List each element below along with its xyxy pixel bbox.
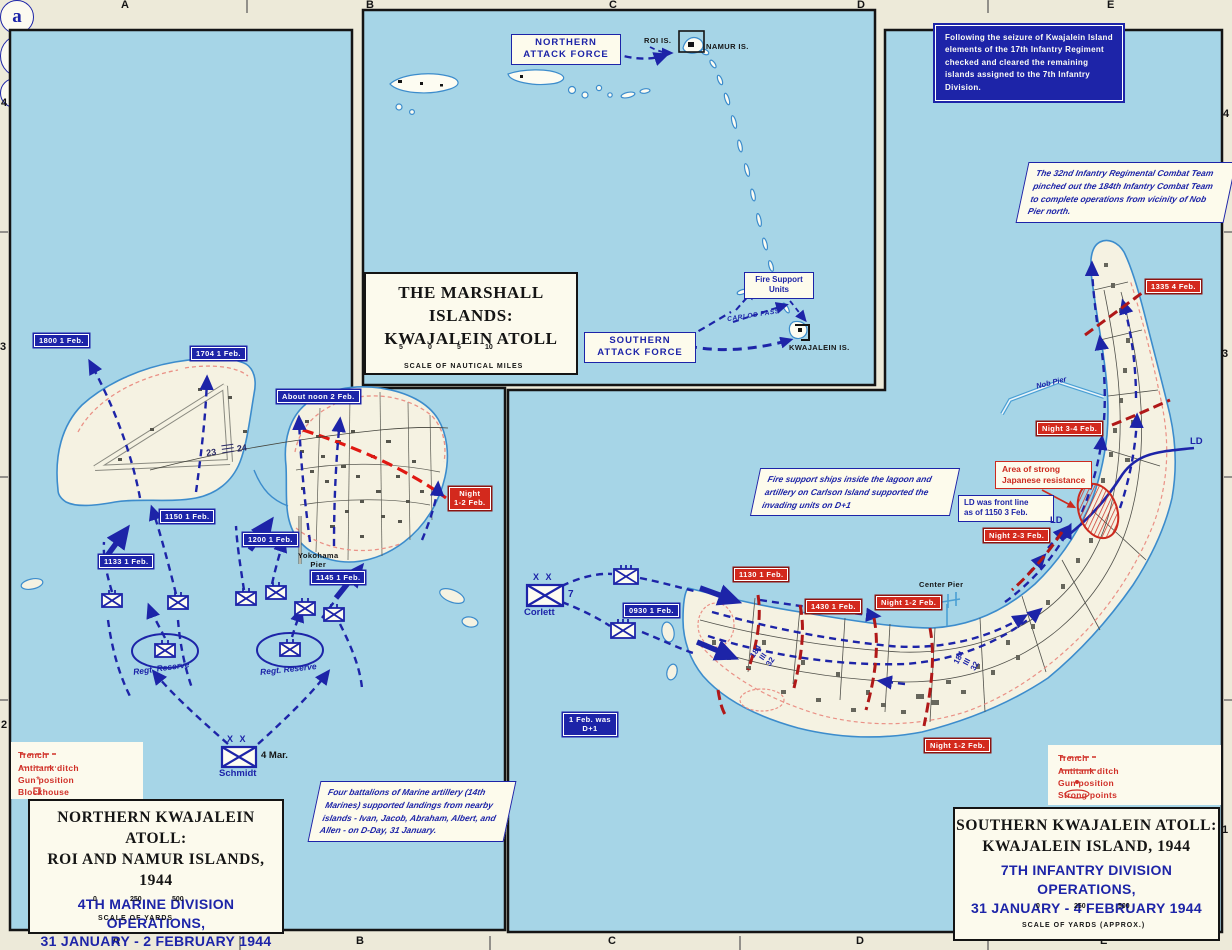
boundary-23: 23 bbox=[206, 447, 217, 458]
antitank-ditch-symbol bbox=[1058, 765, 1098, 775]
night-1-2-feb-mid: Night 1-2 Feb. bbox=[876, 596, 941, 609]
resistance-area-label: Area of strong Japanese resistance bbox=[995, 461, 1092, 489]
center-pier-label: Center Pier bbox=[919, 580, 963, 589]
grid-top-d: D bbox=[857, 0, 865, 11]
d-plus-1-note: 1 Feb. was D+1 bbox=[563, 713, 617, 736]
trench-symbol bbox=[18, 749, 58, 759]
inset-scale-tick: 5 bbox=[399, 344, 403, 351]
night-2-3-feb: Night 2-3 Feb. bbox=[984, 529, 1049, 542]
gun-position-symbol: * bbox=[18, 774, 58, 784]
grid-top-e: E bbox=[1107, 0, 1114, 11]
time-label-1145: 1145 1 Feb. bbox=[311, 571, 365, 584]
time-label-1200: 1200 1 Feb. bbox=[243, 533, 298, 546]
legend-row: Strong points bbox=[1058, 789, 1117, 801]
time-label-0930: 0930 1 Feb. bbox=[624, 604, 679, 617]
kwajalein-island-label: KWAJALEIN IS. bbox=[789, 343, 850, 352]
grid-left-2: 2 bbox=[1, 719, 7, 731]
scale-tick: 0 bbox=[93, 896, 97, 903]
scale-label: SCALE OF YARDS (APPROX.) bbox=[1022, 922, 1145, 929]
legend-row: Antitank ditch bbox=[1058, 765, 1119, 777]
grid-top-c: C bbox=[609, 0, 617, 11]
grid-bottom-d: D bbox=[856, 935, 864, 947]
grid-right-1: 1 bbox=[1222, 824, 1228, 836]
inset-scale-tick: 5 bbox=[457, 344, 461, 351]
division-xx-south: X X bbox=[533, 573, 554, 583]
fire-support-units-label: Fire Support Units bbox=[744, 272, 814, 299]
boundary-24: 24 bbox=[236, 442, 247, 453]
division-xx-north: X X bbox=[227, 735, 248, 745]
time-label-1150: 1150 1 Feb. bbox=[160, 510, 214, 523]
grid-right-4: 4 bbox=[1223, 108, 1229, 120]
grid-bottom-c: C bbox=[608, 935, 616, 947]
grid-bottom-b: B bbox=[356, 935, 364, 947]
division-symbol-north bbox=[222, 747, 256, 767]
legend-row: Trench bbox=[18, 749, 48, 761]
grid-top-a: A bbox=[121, 0, 129, 11]
grid-left-3: 3 bbox=[0, 341, 6, 353]
south-map-title-box: SOUTHERN KWAJALEIN ATOLL: KWAJALEIN ISLA… bbox=[953, 807, 1220, 941]
legend-row: Blockhouse bbox=[18, 786, 69, 798]
division-number-7: 7 bbox=[568, 589, 574, 600]
grid-left-4: 4 bbox=[1, 97, 7, 109]
night-1-2-feb-low: Night 1-2 Feb. bbox=[925, 739, 990, 752]
north-map-title: NORTHERN KWAJALEIN ATOLL: ROI AND NAMUR … bbox=[30, 808, 282, 892]
ld-label-east: LD bbox=[1190, 437, 1203, 447]
ld-front-line-note: LD was front line as of 1150 3 Feb. bbox=[958, 495, 1054, 522]
time-label-1133: 1133 1 Feb. bbox=[99, 555, 153, 568]
commander-corlett: Corlett bbox=[524, 608, 555, 618]
time-label-1335: 1335 4 Feb. bbox=[1146, 280, 1201, 293]
inset-scale-tick: 0 bbox=[428, 344, 432, 351]
inset-title: THE MARSHALL ISLANDS: KWAJALEIN ATOLL bbox=[366, 282, 576, 351]
inset-scale-tick: 10 bbox=[485, 344, 493, 351]
fire-support-note: Fire support ships inside the lagoon and… bbox=[750, 468, 960, 516]
south-map-title: SOUTHERN KWAJALEIN ATOLL: KWAJALEIN ISLA… bbox=[955, 816, 1218, 858]
north-map-title-box: NORTHERN KWAJALEIN ATOLL: ROI AND NAMUR … bbox=[28, 799, 284, 934]
south-map-subtitle: 7TH INFANTRY DIVISION OPERATIONS, 31 JAN… bbox=[955, 861, 1218, 918]
division-name-4-mar: 4 Mar. bbox=[261, 750, 288, 761]
inset-scale-label: SCALE OF NAUTICAL MILES bbox=[404, 363, 523, 370]
legend-row: Antitank ditch bbox=[18, 762, 79, 774]
trench-symbol bbox=[1058, 752, 1098, 762]
ld-label-west: LD bbox=[1050, 516, 1063, 526]
division-symbol-south bbox=[527, 585, 563, 606]
night-1-2-feb-label-north: Night 1-2 Feb. bbox=[449, 487, 491, 510]
northern-attack-force-label: NORTHERN ATTACK FORCE bbox=[511, 34, 621, 65]
night-3-4-feb: Night 3-4 Feb. bbox=[1037, 422, 1102, 435]
map-sheet: 23 24 bbox=[0, 0, 1232, 950]
seizure-note: Following the seizure of Kwajalein Islan… bbox=[935, 25, 1123, 101]
legend-row: * Gun position bbox=[18, 774, 74, 786]
pinched-note: The 32nd Infantry Regimental Combat Team… bbox=[1016, 162, 1232, 223]
grid-top-b: B bbox=[366, 0, 374, 11]
namur-island-label: NAMUR IS. bbox=[706, 42, 749, 51]
scale-tick: 500 bbox=[172, 896, 184, 903]
time-label-1430: 1430 1 Feb. bbox=[806, 600, 861, 613]
antitank-ditch-symbol bbox=[18, 762, 58, 772]
artillery-note: Four battalions of Marine artillery (14t… bbox=[308, 781, 517, 842]
southern-attack-force-label: SOUTHERN ATTACK FORCE bbox=[584, 332, 696, 363]
time-label-1130: 1130 1 Feb. bbox=[734, 568, 788, 581]
yokohama-pier-label: Yokohama Pier bbox=[298, 551, 339, 570]
scale-tick: 250 bbox=[130, 896, 142, 903]
time-label-1704: 1704 1 Feb. bbox=[191, 347, 246, 360]
legend-row: Trench bbox=[1058, 752, 1088, 764]
scale-tick: 250 bbox=[1074, 903, 1086, 910]
svg-text:*: * bbox=[36, 775, 40, 784]
grid-right-3: 3 bbox=[1222, 348, 1228, 360]
commander-schmidt: Schmidt bbox=[219, 769, 256, 779]
north-map-subtitle: 4TH MARINE DIVISION OPERATIONS, 31 JANUA… bbox=[30, 895, 282, 950]
roi-island-label: ROI IS. bbox=[644, 36, 671, 45]
scale-tick: 500 bbox=[1118, 903, 1130, 910]
legend-row: Gun position bbox=[1058, 777, 1114, 789]
time-label-noon: About noon 2 Feb. bbox=[277, 390, 360, 403]
scale-label: SCALE OF YARDS bbox=[98, 915, 173, 922]
time-label-1800: 1800 1 Feb. bbox=[34, 334, 89, 347]
blockhouse-symbol bbox=[18, 786, 58, 796]
gun-position-symbol bbox=[1058, 777, 1098, 787]
strong-points-symbol bbox=[1058, 789, 1098, 799]
inset-title-box: THE MARSHALL ISLANDS: KWAJALEIN ATOLL bbox=[364, 272, 578, 375]
scale-tick: 0 bbox=[1036, 903, 1040, 910]
